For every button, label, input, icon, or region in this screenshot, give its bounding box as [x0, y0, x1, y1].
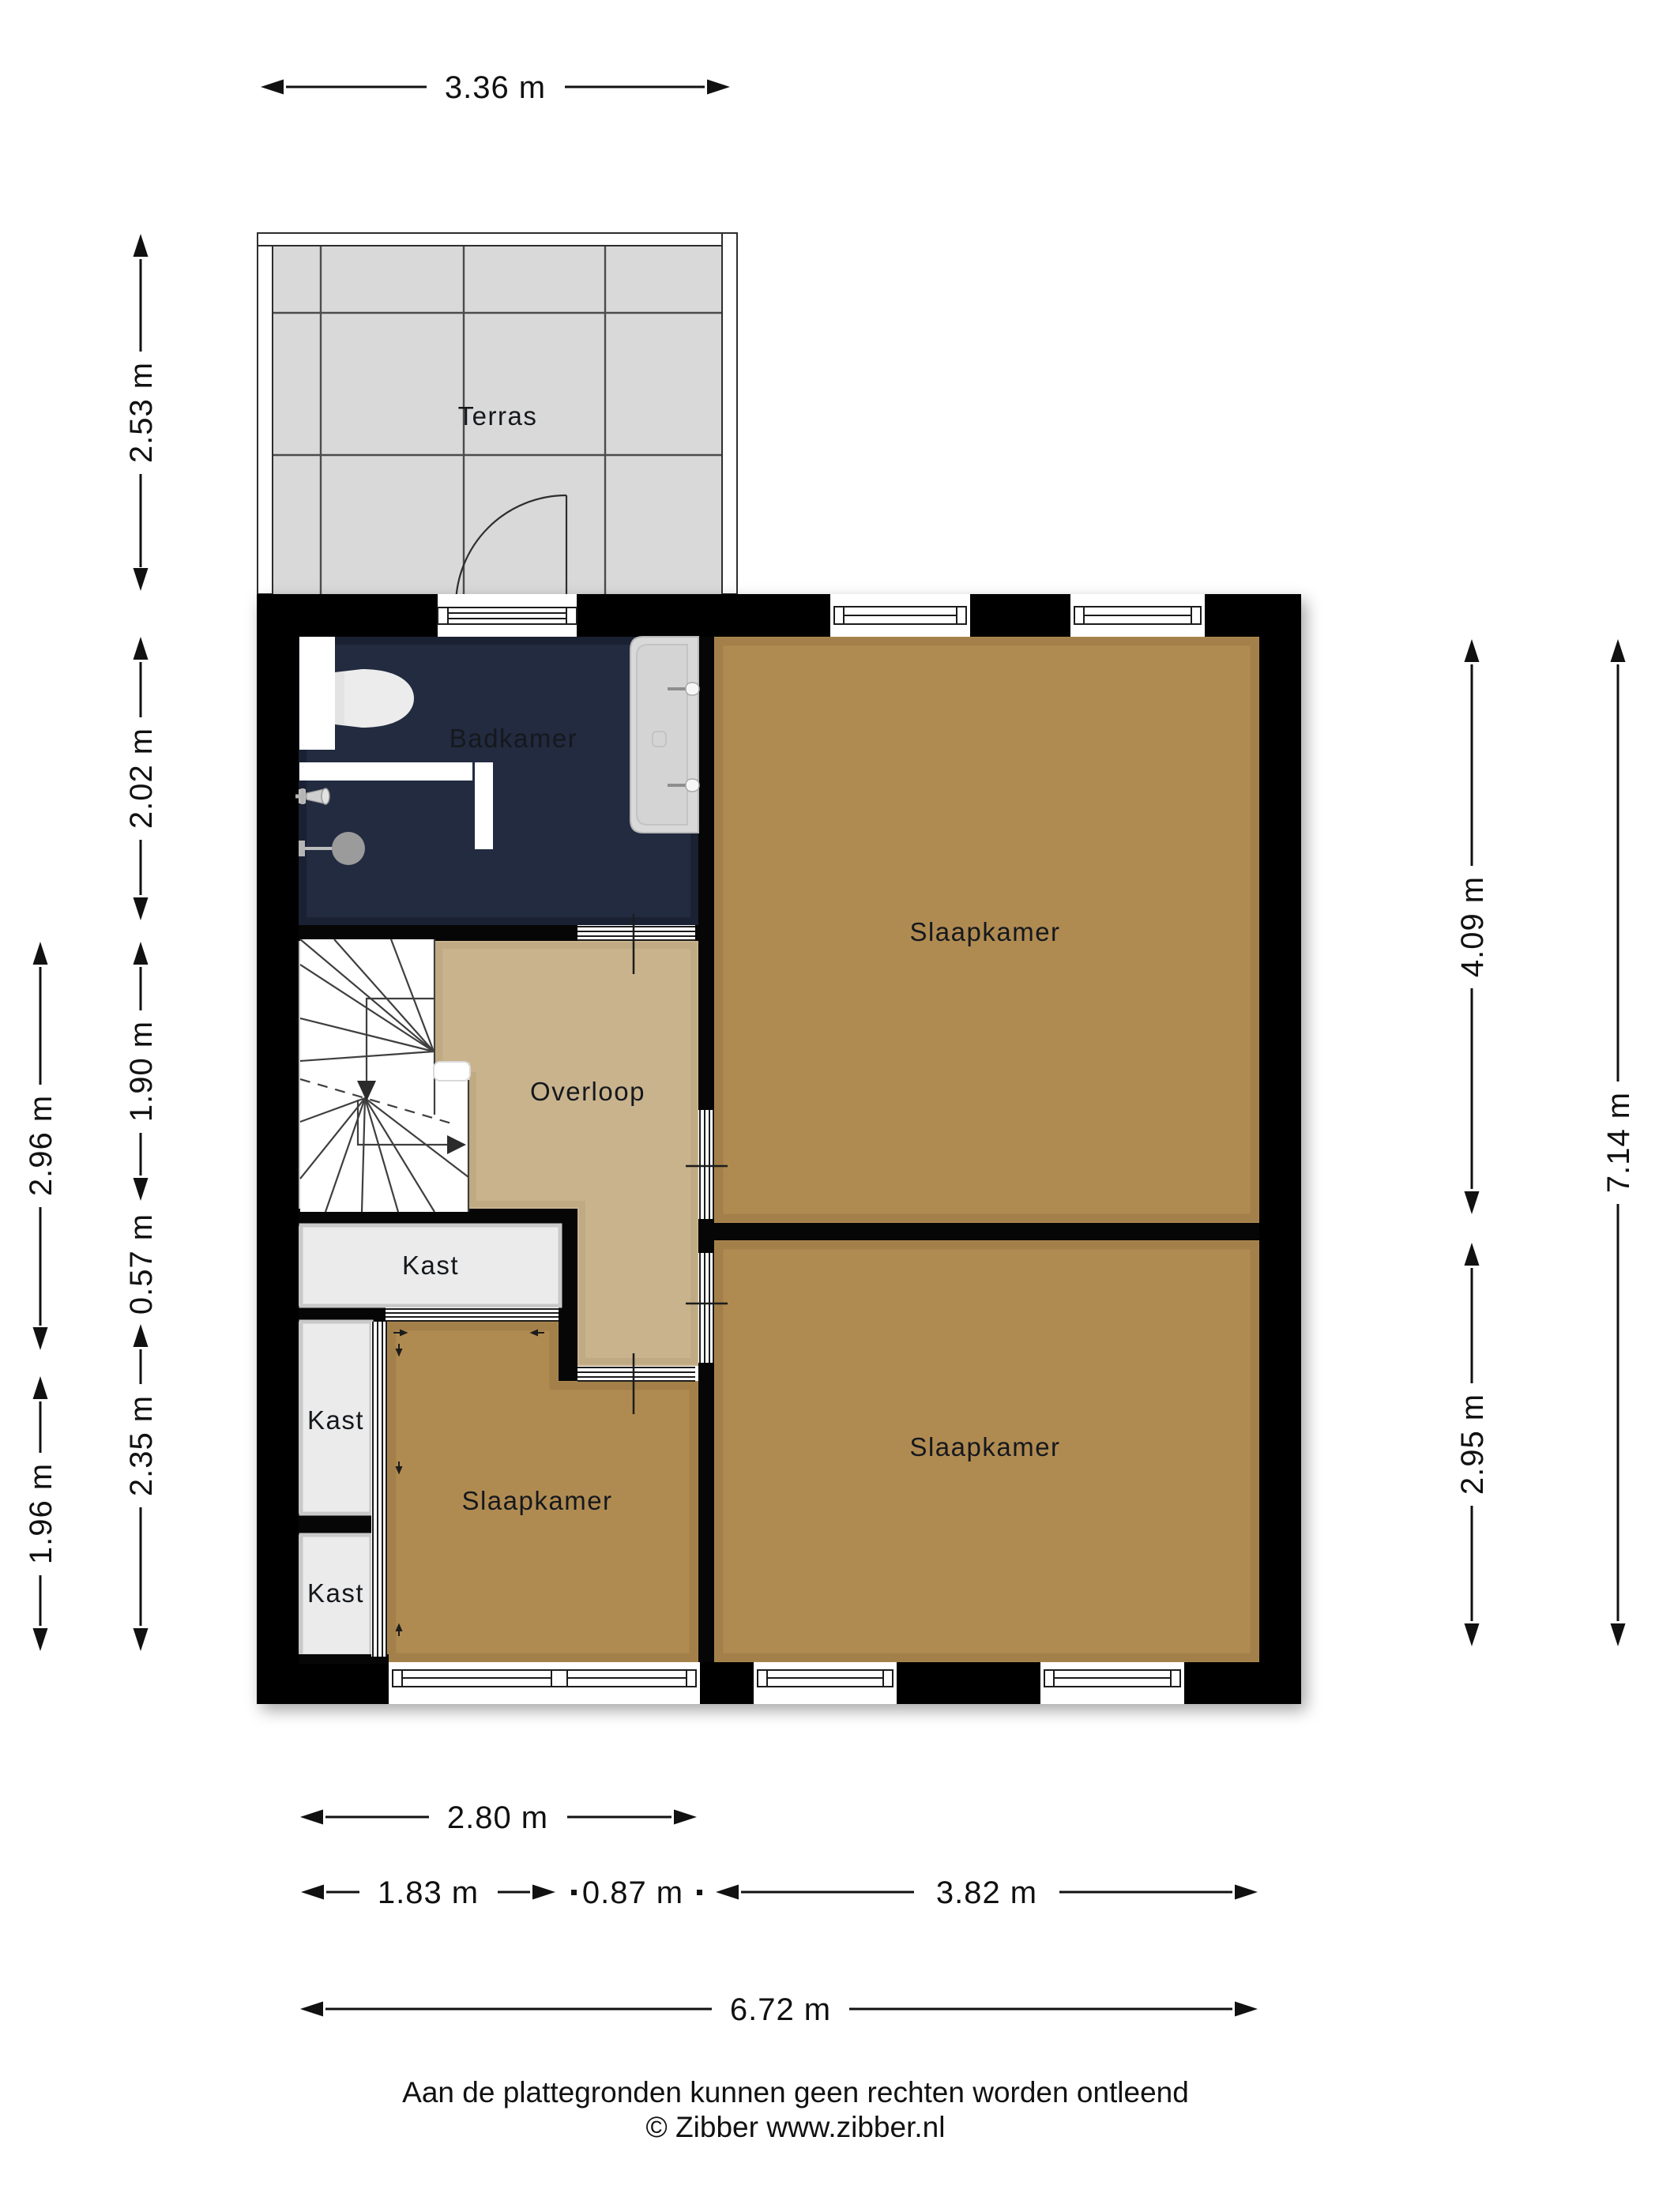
- svg-text:© Zibber www.zibber.nl: © Zibber www.zibber.nl: [646, 2111, 946, 2143]
- svg-text:Kast: Kast: [402, 1251, 459, 1280]
- svg-text:3.82 m: 3.82 m: [936, 1875, 1037, 1910]
- svg-text:4.09 m: 4.09 m: [1455, 876, 1490, 977]
- svg-text:Terras: Terras: [458, 401, 538, 431]
- svg-text:2.35 m: 2.35 m: [124, 1395, 159, 1496]
- svg-text:3.36 m: 3.36 m: [445, 70, 546, 105]
- svg-text:1.96 m: 1.96 m: [24, 1463, 58, 1564]
- svg-text:2.96 m: 2.96 m: [24, 1095, 58, 1196]
- svg-text:Slaapkamer: Slaapkamer: [909, 1432, 1060, 1461]
- svg-text:Kast: Kast: [307, 1405, 364, 1435]
- svg-text:Kast: Kast: [307, 1578, 364, 1608]
- svg-text:Slaapkamer: Slaapkamer: [461, 1486, 612, 1515]
- svg-text:0.57 m: 0.57 m: [124, 1213, 159, 1315]
- svg-text:7.14 m: 7.14 m: [1601, 1092, 1636, 1193]
- svg-text:Badkamer: Badkamer: [450, 724, 577, 753]
- svg-text:2.53 m: 2.53 m: [124, 362, 159, 463]
- svg-text:Overloop: Overloop: [530, 1077, 645, 1106]
- svg-text:2.95 m: 2.95 m: [1455, 1394, 1490, 1495]
- svg-text:2.02 m: 2.02 m: [124, 728, 159, 829]
- svg-text:1.83 m: 1.83 m: [378, 1875, 479, 1910]
- svg-text:Slaapkamer: Slaapkamer: [909, 917, 1060, 946]
- svg-text:2.80 m: 2.80 m: [447, 1800, 548, 1835]
- svg-text:1.90 m: 1.90 m: [124, 1021, 159, 1122]
- svg-text:0.87 m: 0.87 m: [582, 1875, 683, 1910]
- svg-text:Aan de plattegronden kunnen ge: Aan de plattegronden kunnen geen rechten…: [402, 2076, 1189, 2109]
- svg-text:6.72 m: 6.72 m: [730, 1992, 831, 2027]
